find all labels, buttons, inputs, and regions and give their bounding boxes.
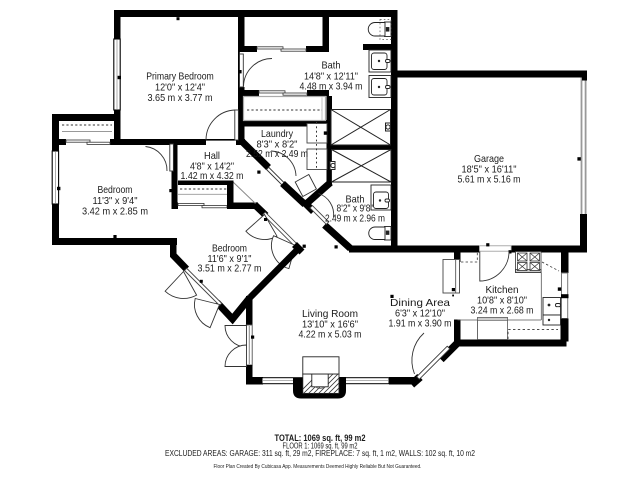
svg-text:Living Room: Living Room xyxy=(302,309,358,320)
svg-text:3.65 m x 3.77 m: 3.65 m x 3.77 m xyxy=(148,93,213,104)
svg-text:1.42 m x 4.32 m: 1.42 m x 4.32 m xyxy=(181,171,244,182)
svg-text:Floor Plan Created By Cubicasa: Floor Plan Created By Cubicasa App. Meas… xyxy=(214,464,422,470)
svg-text:Garage: Garage xyxy=(474,154,504,165)
svg-text:Laundry: Laundry xyxy=(261,129,294,140)
svg-text:2.52 m x 2.49 m: 2.52 m x 2.49 m xyxy=(246,149,308,160)
svg-text:1.91 m x 3.90 m: 1.91 m x 3.90 m xyxy=(389,319,452,330)
svg-text:Bedroom: Bedroom xyxy=(98,185,133,196)
svg-text:Dining Area: Dining Area xyxy=(390,298,450,309)
svg-text:EXCLUDED AREAS: GARAGE: 311 sq: EXCLUDED AREAS: GARAGE: 311 sq. ft, 29 m… xyxy=(165,449,475,458)
svg-text:2.49 m x 2.96 m: 2.49 m x 2.96 m xyxy=(325,214,385,225)
svg-text:Primary Bedroom: Primary Bedroom xyxy=(146,72,214,83)
svg-text:12'0" x 12'4": 12'0" x 12'4" xyxy=(155,83,205,94)
svg-text:3.24 m x 2.68 m: 3.24 m x 2.68 m xyxy=(471,306,534,317)
svg-text:Hall: Hall xyxy=(204,151,220,162)
svg-text:4.48 m x 3.94 m: 4.48 m x 3.94 m xyxy=(300,82,363,93)
svg-text:Bedroom: Bedroom xyxy=(212,244,247,255)
svg-text:5.61 m x 5.16 m: 5.61 m x 5.16 m xyxy=(458,175,521,186)
svg-text:Bath: Bath xyxy=(322,61,341,72)
svg-text:3.51 m x 2.77 m: 3.51 m x 2.77 m xyxy=(198,264,262,275)
svg-text:Kitchen: Kitchen xyxy=(486,285,519,296)
svg-text:4.22 m x 5.03 m: 4.22 m x 5.03 m xyxy=(299,330,362,341)
svg-text:11'3" x 9'4": 11'3" x 9'4" xyxy=(93,196,138,207)
svg-text:3.42 m x 2.85 m: 3.42 m x 2.85 m xyxy=(82,207,148,218)
